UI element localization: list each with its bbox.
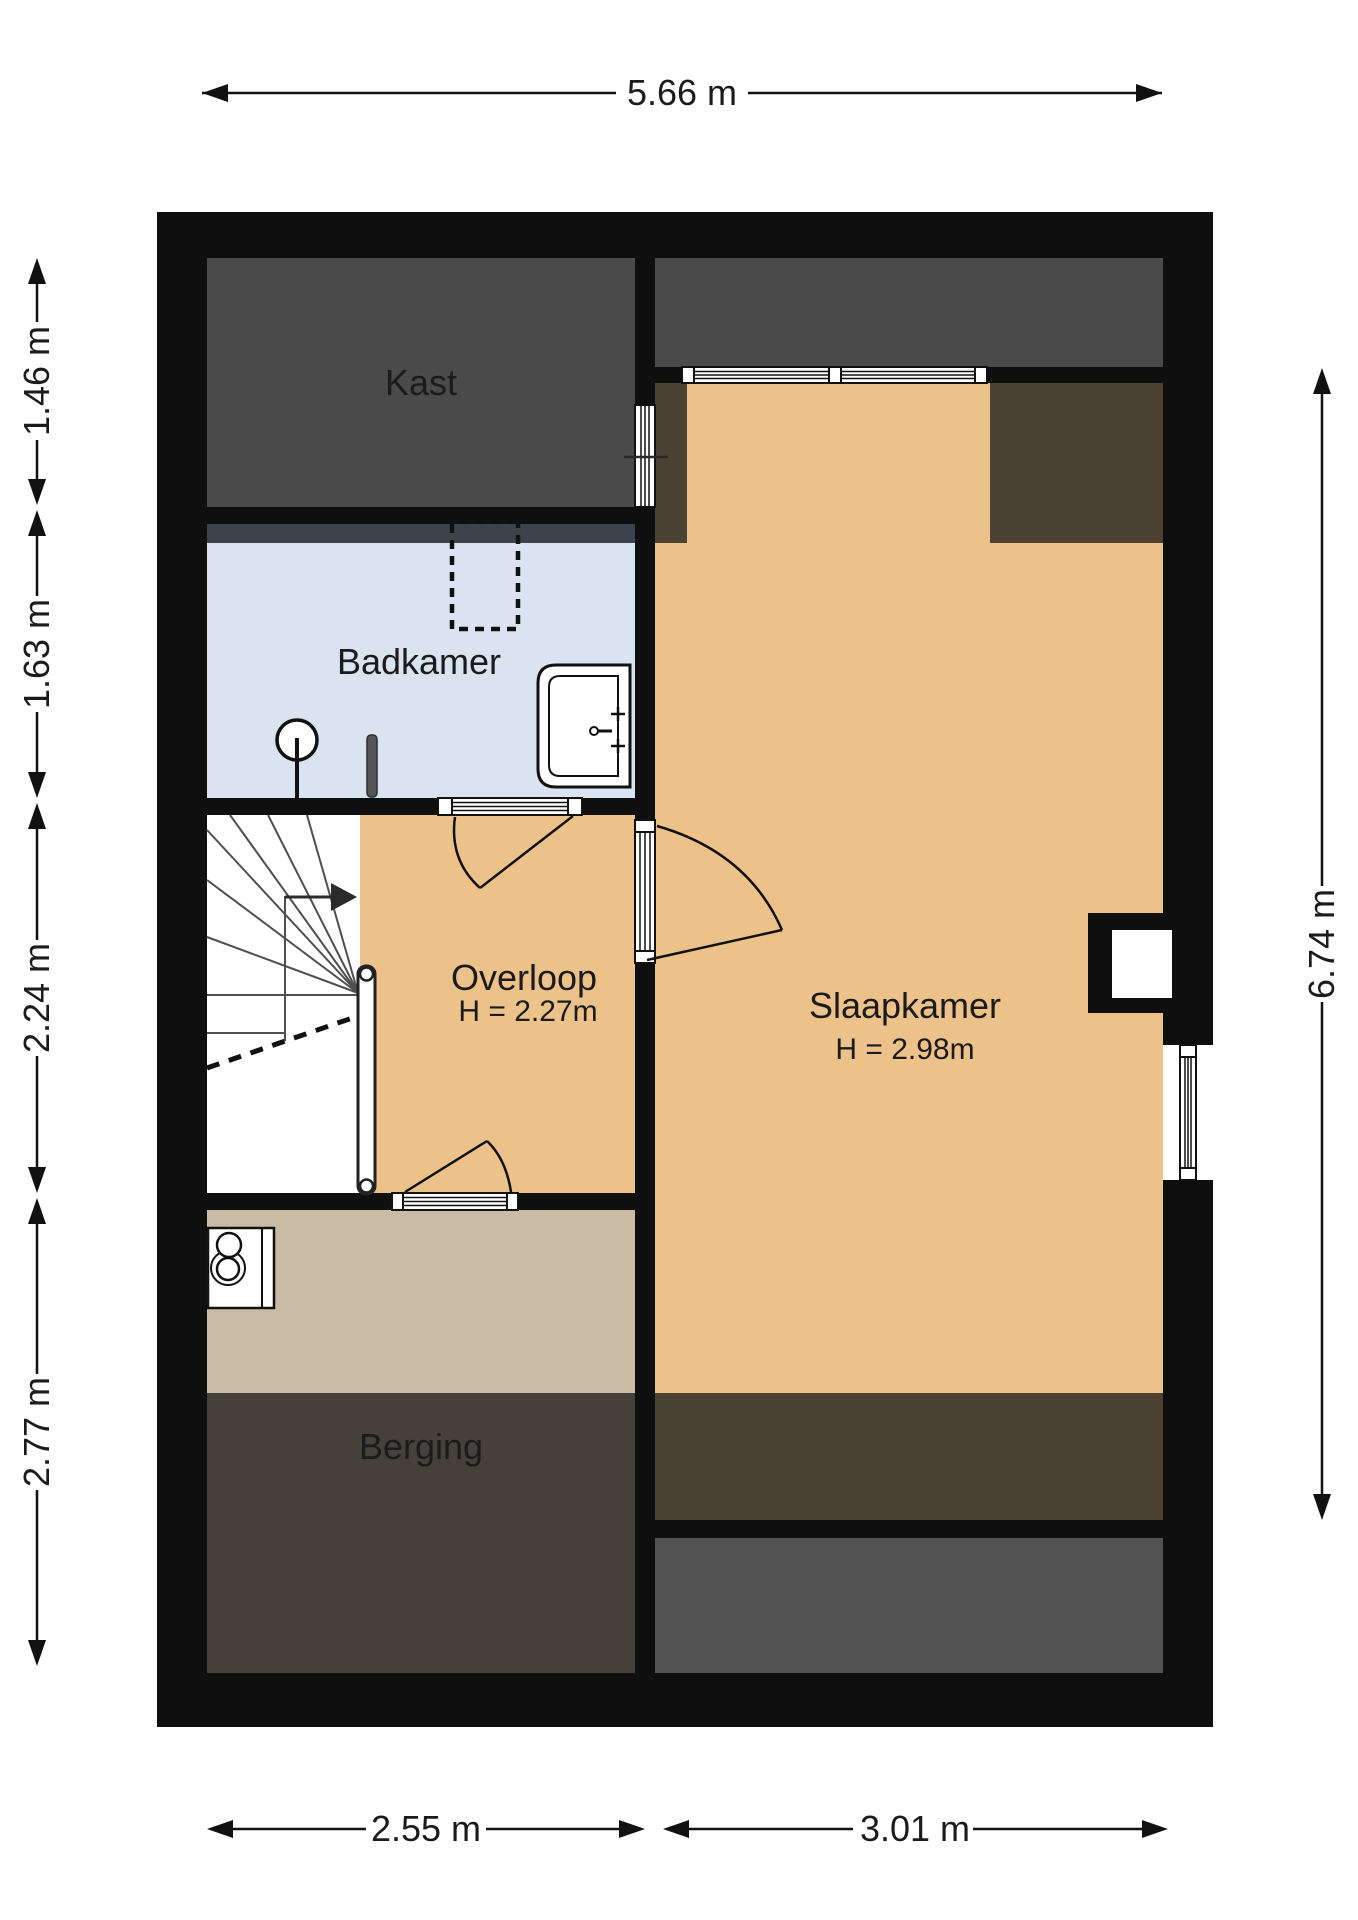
label-berging: Berging: [359, 1426, 483, 1467]
wall-middle-b: [635, 507, 655, 820]
dimension-right: 6.74 m: [1301, 368, 1342, 1520]
radiator-pin-icon: [367, 735, 377, 797]
stairwell: [207, 815, 360, 1193]
label-kast: Kast: [385, 362, 457, 403]
room-slaapkamer: [655, 543, 1163, 1393]
dimension-left-2: 1.63 m: [16, 510, 57, 798]
label-slaapkamer: Slaapkamer: [809, 985, 1001, 1026]
dimension-left-4: 2.77 m: [16, 1198, 57, 1666]
dimension-left-2-label: 1.63 m: [16, 599, 57, 709]
room-slaapkamer-top: [687, 383, 990, 543]
attic-room-bottom: [655, 1538, 1163, 1673]
dimension-right-label: 6.74 m: [1301, 889, 1342, 999]
label-badkamer: Badkamer: [337, 641, 501, 682]
window-icon-top: [682, 367, 987, 383]
floor-plan-page: Kast Badkamer Overloop H = 2.27m Slaapka…: [0, 0, 1358, 1920]
wall-middle-a: [635, 258, 655, 405]
dimension-bottom-2-label: 3.01 m: [860, 1808, 970, 1849]
wall-kast-bottom: [207, 507, 635, 524]
sink-icon: [538, 665, 630, 787]
dimension-left-3: 2.24 m: [16, 803, 57, 1193]
wall-left: [157, 212, 207, 1727]
window-sill-right: [987, 367, 1163, 383]
attic-strip-top: [655, 258, 1163, 367]
dimension-top-label: 5.66 m: [627, 72, 737, 113]
label-overloop: Overloop: [451, 957, 597, 998]
dimension-left-3-label: 2.24 m: [16, 943, 57, 1053]
label-slaapkamer-height: H = 2.98m: [835, 1033, 974, 1066]
dimension-left-1-label: 1.46 m: [16, 326, 57, 436]
slope-strip-left: [655, 383, 687, 543]
boiler-icon: [208, 1228, 274, 1308]
floor-plan-drawing: Kast Badkamer Overloop H = 2.27m Slaapka…: [0, 0, 1358, 1920]
dimension-bottom-1: 2.55 m: [207, 1808, 645, 1849]
dimension-left-4-label: 2.77 m: [16, 1377, 57, 1487]
wall-slaapkamer-bottom: [655, 1520, 1163, 1538]
wall-top: [157, 212, 1213, 258]
wall-middle-c: [635, 963, 655, 1673]
dimension-bottom-1-label: 2.55 m: [371, 1808, 481, 1849]
label-overloop-height: H = 2.27m: [458, 995, 597, 1028]
window-sill-left: [655, 367, 682, 383]
slope-strip-bottom: [655, 1393, 1163, 1520]
shadow-strip: [207, 524, 635, 543]
chimney-niche-icon: [1112, 930, 1172, 998]
wall-bottom: [157, 1673, 1213, 1727]
dimension-bottom-2: 3.01 m: [663, 1808, 1168, 1849]
handrail-icon: [358, 966, 375, 1194]
slope-strip-right: [990, 383, 1163, 543]
wall-right-lower: [1163, 1180, 1213, 1727]
dimension-left-1: 1.46 m: [16, 258, 57, 505]
window-icon-right: [1163, 1045, 1213, 1180]
dimension-top: 5.66 m: [202, 72, 1162, 113]
